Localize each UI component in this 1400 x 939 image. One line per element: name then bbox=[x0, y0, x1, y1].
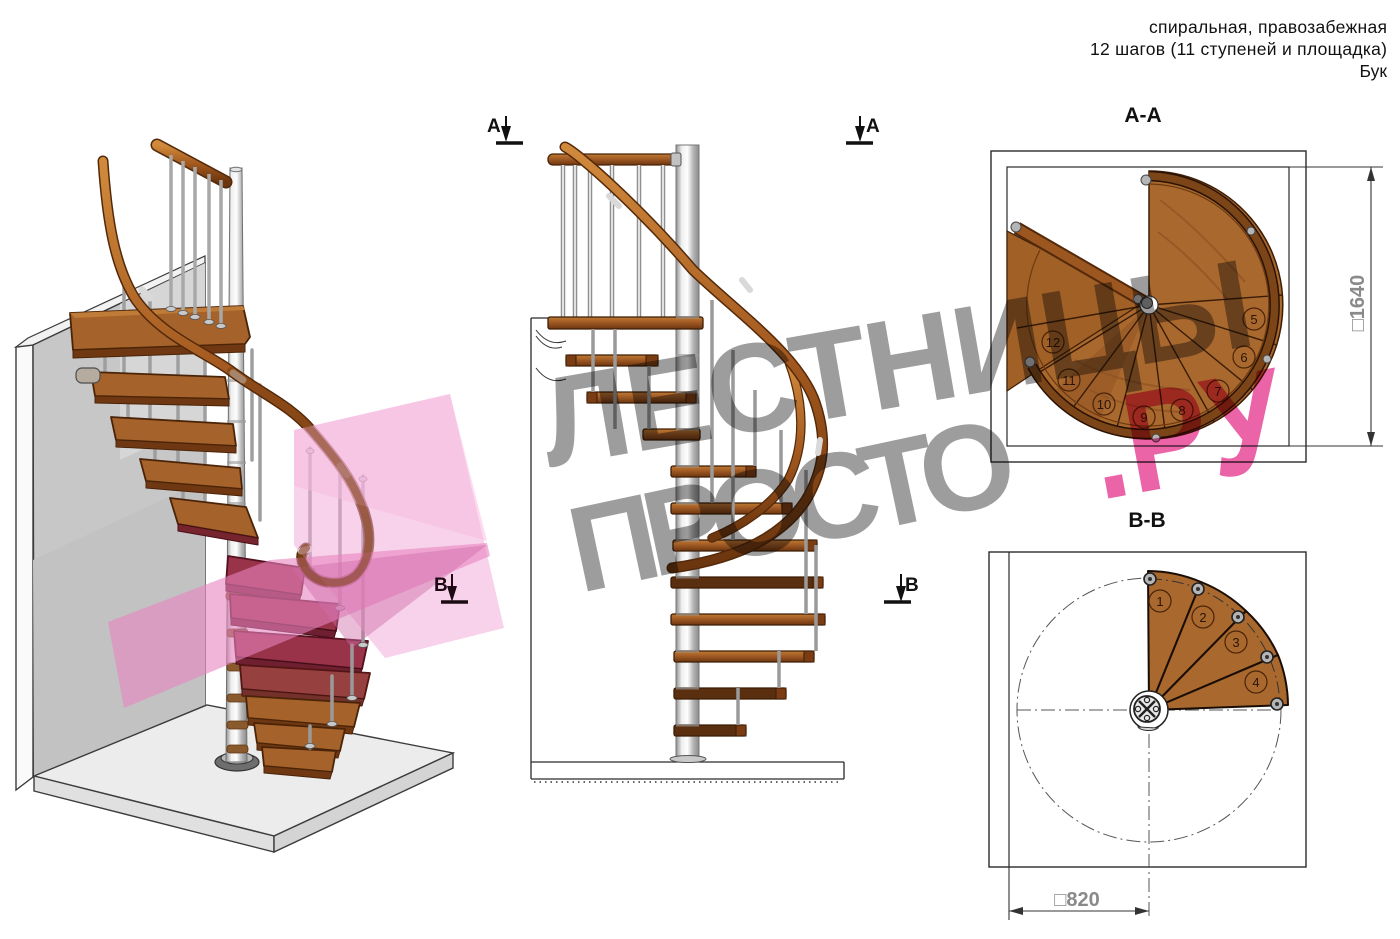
svg-text:спиральная, правозабежная: спиральная, правозабежная bbox=[1149, 17, 1387, 37]
svg-text:12 шагов (11 ступеней и площад: 12 шагов (11 ступеней и площадка) bbox=[1090, 39, 1387, 59]
svg-text:B: B bbox=[905, 575, 919, 596]
svg-text:A: A bbox=[866, 116, 880, 137]
svg-text:4: 4 bbox=[1252, 675, 1259, 690]
svg-text:B: B bbox=[434, 575, 448, 596]
svg-text:A-A: A-A bbox=[1124, 104, 1161, 127]
svg-text:□820: □820 bbox=[1054, 889, 1099, 911]
svg-text:3: 3 bbox=[1232, 635, 1239, 650]
svg-text:1: 1 bbox=[1156, 594, 1163, 609]
svg-text:□1640: □1640 bbox=[1347, 275, 1369, 332]
svg-text:2: 2 bbox=[1199, 610, 1206, 625]
svg-text:Бук: Бук bbox=[1359, 61, 1387, 81]
svg-text:A: A bbox=[487, 116, 501, 137]
